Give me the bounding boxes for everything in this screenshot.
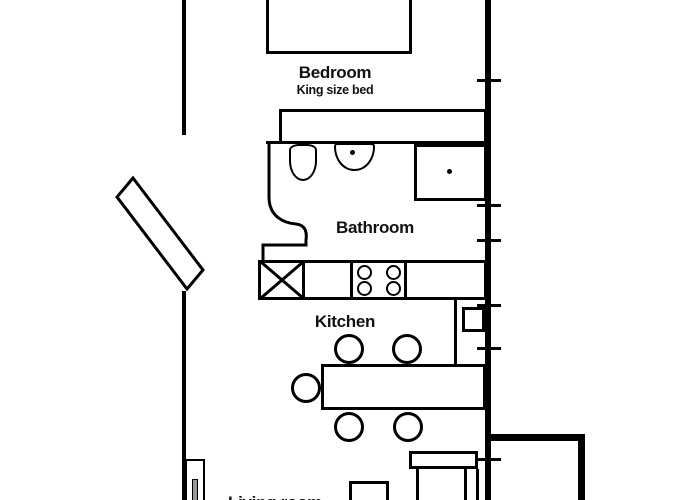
bathroom-label: Bathroom xyxy=(295,219,455,238)
bedroom-sublabel: King size bed xyxy=(255,84,415,98)
floor-plan: Bedroom King size bed Bathroom Kitchen L… xyxy=(0,0,700,500)
bedroom-label: Bedroom xyxy=(255,64,415,83)
entry-door-leaf xyxy=(117,178,203,289)
bathroom-curved-wall xyxy=(263,143,306,261)
living-room-label: Living room xyxy=(195,494,355,500)
kitchen-label: Kitchen xyxy=(265,313,425,332)
